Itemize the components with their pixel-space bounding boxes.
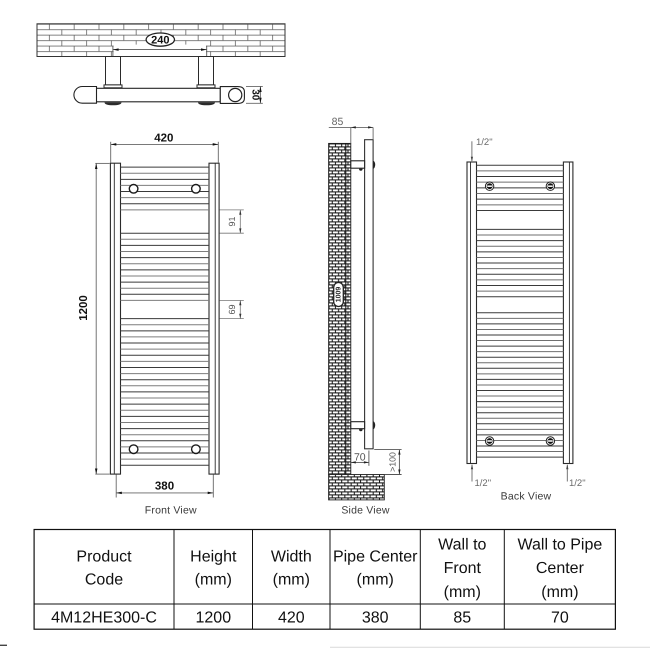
svg-text:Height: Height [190, 549, 237, 566]
svg-text:70: 70 [551, 610, 569, 627]
svg-text:Side View: Side View [341, 505, 390, 517]
svg-text:70: 70 [354, 451, 366, 463]
svg-text:1/2": 1/2" [476, 137, 493, 148]
svg-text:69: 69 [227, 304, 237, 314]
svg-text:Pipe Center: Pipe Center [333, 549, 418, 566]
svg-text:1200: 1200 [78, 295, 90, 321]
svg-text:1009: 1009 [335, 287, 342, 303]
svg-text:Center: Center [536, 560, 585, 577]
svg-text:(mm): (mm) [195, 572, 232, 589]
svg-text:Back View: Back View [501, 491, 552, 503]
svg-text:Front View: Front View [145, 505, 197, 517]
svg-text:Wall to Pipe: Wall to Pipe [518, 536, 603, 553]
svg-text:91: 91 [227, 216, 237, 226]
svg-text:1200: 1200 [196, 610, 232, 627]
svg-text:420: 420 [278, 610, 305, 627]
svg-text:>100: >100 [388, 452, 398, 472]
svg-text:(mm): (mm) [273, 572, 310, 589]
svg-text:85: 85 [332, 116, 344, 128]
svg-text:(mm): (mm) [444, 584, 481, 601]
svg-text:Code: Code [85, 572, 123, 589]
svg-text:Wall to: Wall to [438, 536, 486, 553]
svg-text:4M12HE300-C: 4M12HE300-C [51, 610, 157, 627]
svg-text:Front: Front [444, 560, 482, 577]
svg-text:420: 420 [154, 132, 173, 144]
svg-text:380: 380 [362, 610, 389, 627]
svg-text:1/2": 1/2" [569, 478, 586, 489]
svg-text:(mm): (mm) [357, 572, 394, 589]
svg-text:1/2": 1/2" [475, 478, 492, 489]
svg-text:Width: Width [271, 549, 312, 566]
svg-text:30: 30 [250, 89, 261, 101]
svg-text:Product: Product [76, 549, 132, 566]
svg-text:(mm): (mm) [541, 584, 578, 601]
svg-text:85: 85 [453, 610, 471, 627]
svg-text:240: 240 [151, 34, 169, 46]
svg-text:380: 380 [155, 481, 174, 493]
